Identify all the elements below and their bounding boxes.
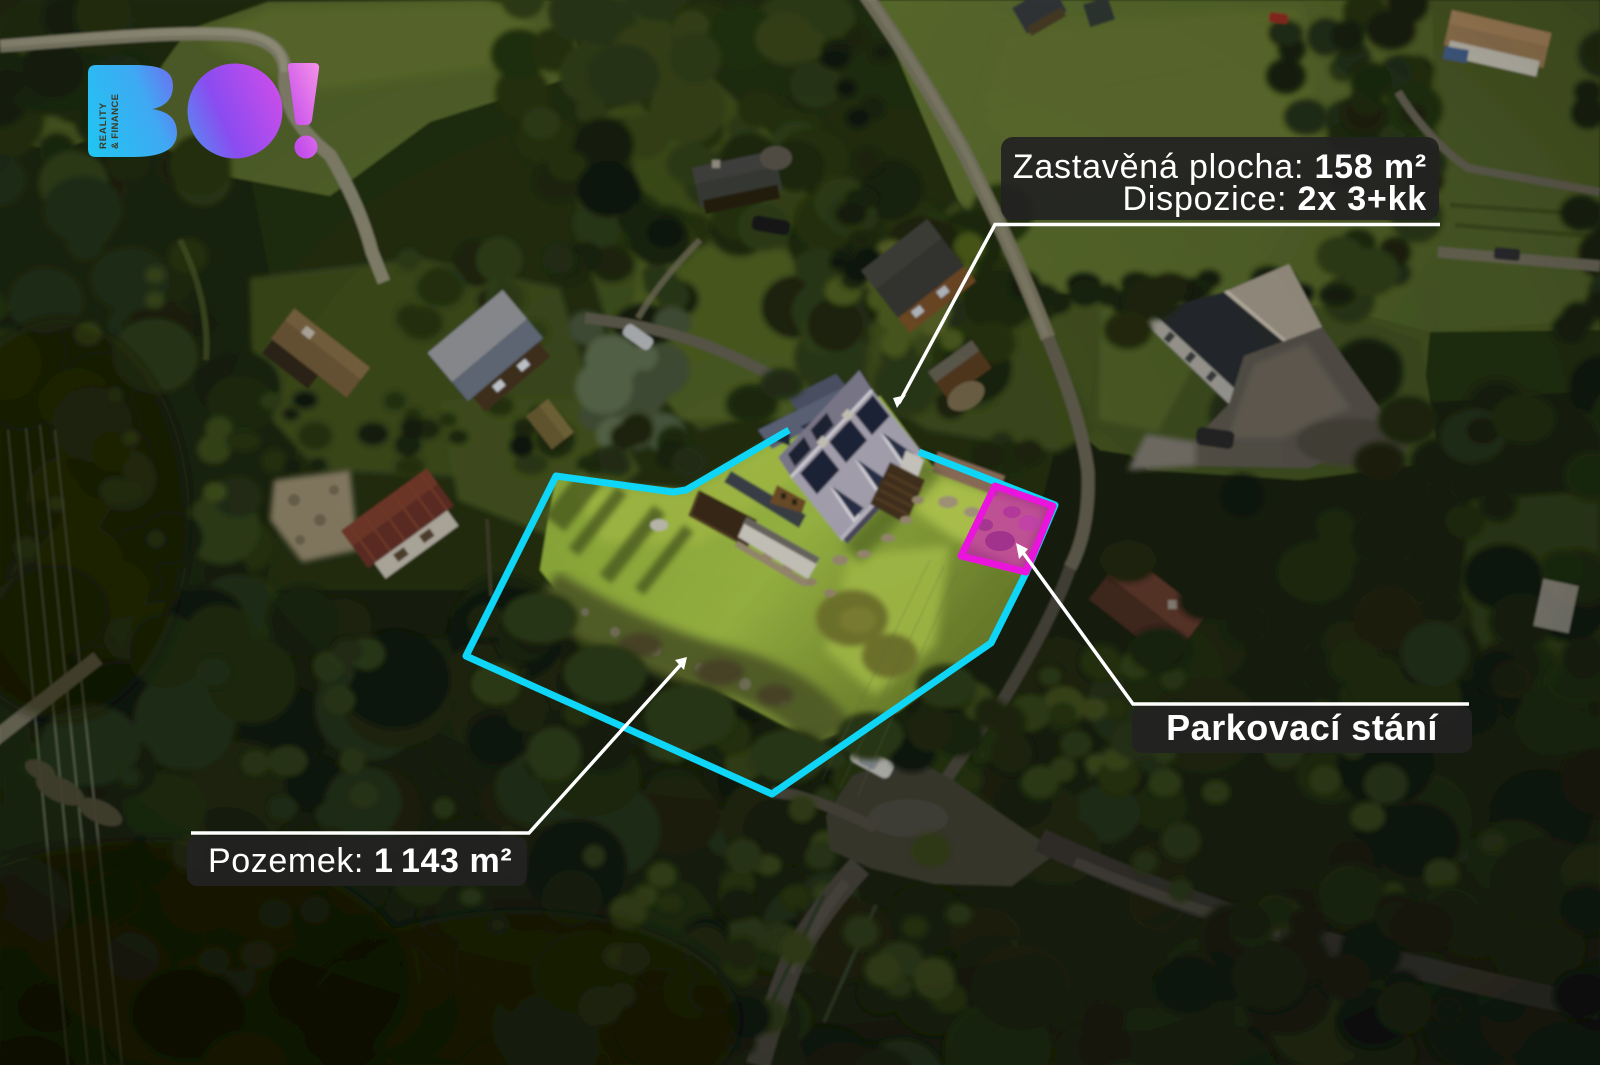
svg-text:& FINANCE: & FINANCE <box>110 94 121 149</box>
svg-text:REALITY: REALITY <box>98 102 109 149</box>
svg-text:Dispozice: 2x 3+kk: Dispozice: 2x 3+kk <box>1122 180 1427 218</box>
svg-text:Pozemek: 1 143 m²: Pozemek: 1 143 m² <box>208 842 512 880</box>
svg-text:Parkovací stání: Parkovací stání <box>1166 707 1438 748</box>
